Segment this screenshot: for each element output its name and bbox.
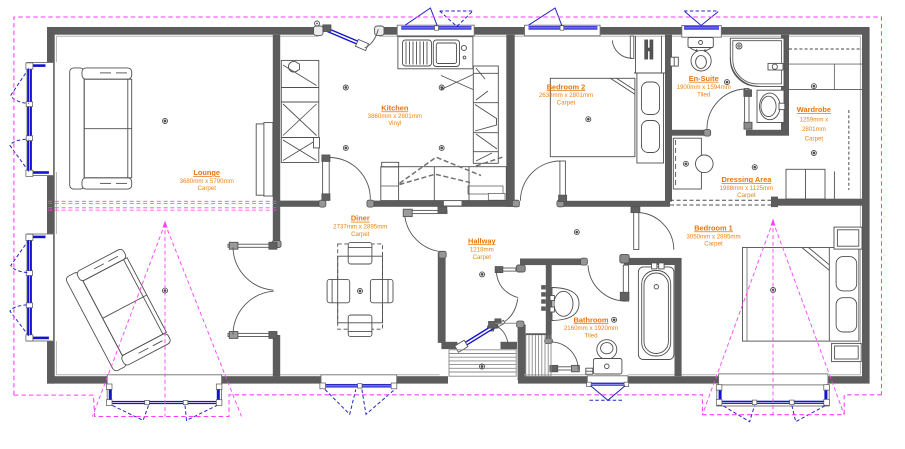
svg-text:Carpet: Carpet xyxy=(805,136,824,143)
svg-text:Lounge: Lounge xyxy=(193,168,220,177)
svg-text:Vinyl: Vinyl xyxy=(388,120,401,127)
svg-text:1259mm x: 1259mm x xyxy=(800,116,829,123)
svg-text:3860mm x 2801mm: 3860mm x 2801mm xyxy=(368,113,422,120)
svg-text:2638mm x 2801mm: 2638mm x 2801mm xyxy=(539,92,593,99)
svg-text:Bathroom: Bathroom xyxy=(574,315,609,324)
svg-text:Wardrobe: Wardrobe xyxy=(797,105,831,114)
svg-text:Diner: Diner xyxy=(351,214,370,223)
svg-text:Bedroom 2: Bedroom 2 xyxy=(547,82,586,91)
svg-text:Dressing Area: Dressing Area xyxy=(721,175,772,184)
svg-text:2801mm: 2801mm xyxy=(802,126,826,133)
svg-text:Hallway: Hallway xyxy=(468,236,496,245)
svg-text:Carpet: Carpet xyxy=(737,192,756,199)
svg-text:Carpet: Carpet xyxy=(197,185,216,192)
svg-text:1900mm x 1594mm: 1900mm x 1594mm xyxy=(677,84,731,91)
svg-text:1218mm: 1218mm xyxy=(470,247,494,254)
svg-text:Tiled: Tiled xyxy=(697,91,711,98)
svg-text:Carpet: Carpet xyxy=(351,231,370,238)
svg-text:Carpet: Carpet xyxy=(704,240,723,247)
svg-text:3050mm x 2895mm: 3050mm x 2895mm xyxy=(686,233,740,240)
svg-text:En-Suite: En-Suite xyxy=(689,74,719,83)
svg-text:2160mm x 1920mm: 2160mm x 1920mm xyxy=(564,325,618,332)
svg-text:Carpet: Carpet xyxy=(557,100,576,107)
svg-text:Bedroom 1: Bedroom 1 xyxy=(694,223,733,232)
svg-text:Kitchen: Kitchen xyxy=(381,103,409,112)
svg-text:3680mm x 5790mm: 3680mm x 5790mm xyxy=(180,178,234,185)
svg-text:Carpet: Carpet xyxy=(473,254,492,261)
svg-text:1988mm x 1125mm: 1988mm x 1125mm xyxy=(719,185,773,192)
svg-text:Tiled: Tiled xyxy=(584,332,598,339)
svg-text:2737mm x 2895mm: 2737mm x 2895mm xyxy=(333,224,387,231)
